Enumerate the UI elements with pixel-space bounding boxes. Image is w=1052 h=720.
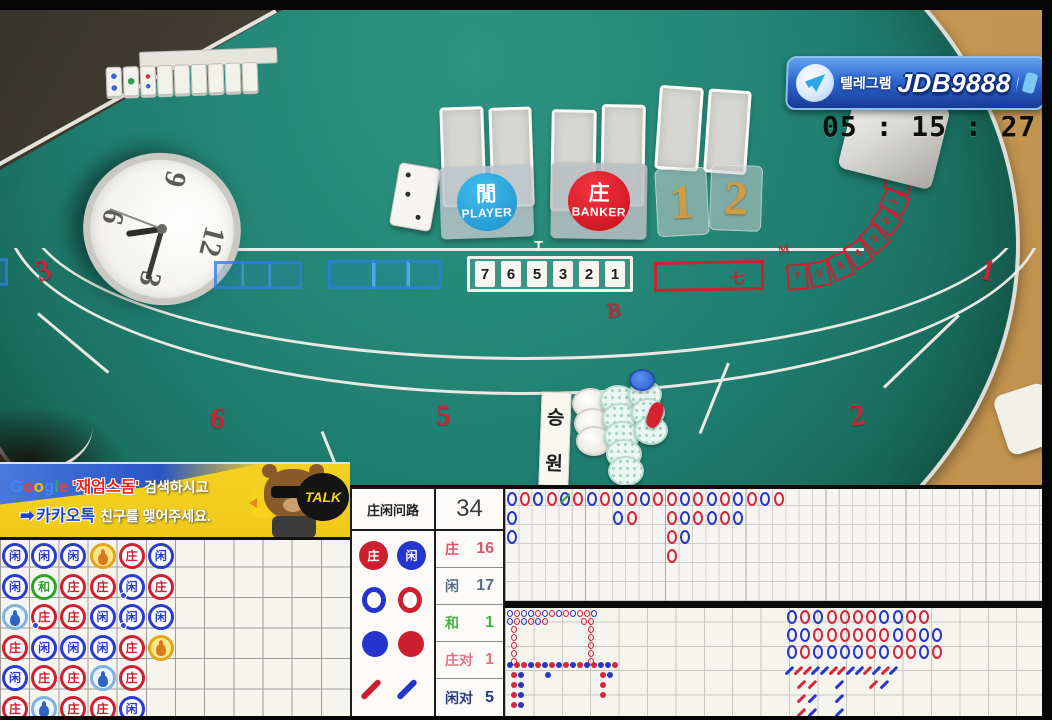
telegram-label: 텔레그램	[840, 73, 892, 93]
big-road	[505, 485, 1052, 601]
road-ring	[893, 645, 903, 659]
stat-value: 1	[485, 614, 494, 632]
road-ring	[919, 628, 929, 642]
stat-row: 闲17	[436, 568, 503, 605]
legend-banker-bead: 庄	[359, 541, 388, 570]
smallroad-dot	[605, 662, 611, 668]
road-ring	[787, 645, 797, 659]
shoe-number-tile: 1	[654, 167, 709, 238]
player-bet-box	[328, 260, 442, 289]
bead	[90, 665, 116, 691]
letterbox-bottom	[0, 716, 1052, 720]
bigeye-ring	[588, 634, 594, 641]
google-logo-letter: e	[59, 477, 68, 496]
paper-plane-icon	[805, 74, 826, 92]
bigeye-ring	[511, 634, 517, 641]
google-logo-letter: o	[23, 477, 33, 496]
smallroad-dot	[518, 682, 524, 688]
talk-label: TALK	[305, 489, 341, 505]
player-marker: 閒 PLAYER	[439, 164, 534, 239]
smallroad-dot	[511, 692, 517, 698]
player-bet-box	[0, 258, 8, 286]
stat-value: 17	[476, 577, 494, 595]
stat-label: 庄对	[445, 650, 473, 670]
legend-smallroad-red-icon	[398, 631, 424, 657]
banker-hanzi: 庄	[588, 183, 609, 205]
road-ring	[906, 628, 916, 642]
shoe-number-tile: 2	[709, 164, 763, 232]
road-ring	[866, 628, 876, 642]
bead: 庄	[148, 574, 174, 600]
road-ring	[533, 492, 543, 506]
road-ring	[827, 610, 837, 624]
road-ring	[573, 492, 583, 506]
road-ring	[587, 492, 597, 506]
smallroad-dot	[591, 662, 597, 668]
seat-number: 7	[475, 261, 495, 287]
clock-numeral: 9	[156, 168, 193, 191]
bead: 庄	[119, 543, 145, 569]
stat-row: 庄16	[436, 531, 503, 568]
stat-label: 闲对	[445, 688, 473, 708]
road-ring	[840, 610, 850, 624]
smallroad-dot	[600, 682, 606, 688]
games-total: 34	[436, 489, 503, 529]
stat-row: 闲对5	[436, 679, 503, 716]
telegram-banner[interactable]: 텔레그램 JDB9888	[785, 56, 1047, 110]
bigeye-ring	[588, 650, 594, 657]
bigeye-ring	[507, 618, 513, 625]
road-ring	[787, 628, 797, 642]
stat-value: 5	[485, 689, 494, 707]
clock-face: 12 3 6 9	[67, 136, 257, 322]
road-ring	[613, 492, 623, 506]
bead: 闲	[2, 665, 28, 691]
bigeye-ring	[511, 626, 517, 633]
bigeye-ring	[521, 610, 527, 617]
road-ring	[840, 628, 850, 642]
seat-number: 5	[527, 261, 547, 287]
ad-kakao-text: 카카오톡	[36, 508, 95, 525]
bead: 闲	[31, 543, 57, 569]
legend-cockroach-red-icon	[360, 679, 382, 701]
banker-marker: 庄 BANKER	[550, 162, 647, 240]
smallroad-dot	[511, 682, 517, 688]
road-ring	[547, 492, 557, 506]
road-ring	[613, 511, 623, 525]
road-ring	[507, 511, 517, 525]
ad-line-2: ➡카카오톡친구를 맺어주세요.	[20, 502, 211, 526]
smallroad-dot	[549, 662, 555, 668]
road-ring	[774, 492, 784, 506]
road-ring	[827, 628, 837, 642]
banker-marker-circle: 庄 BANKER	[567, 170, 630, 231]
smallroad-dot	[570, 662, 576, 668]
smallroad-dot	[535, 662, 541, 668]
bead: 和	[31, 574, 57, 600]
derived-roads	[505, 601, 1052, 720]
bead: 闲	[60, 635, 86, 661]
bead: 庄	[60, 665, 86, 691]
road-ring	[667, 492, 677, 506]
road-ring	[853, 610, 863, 624]
bead: 闲	[2, 574, 28, 600]
bigeye-ring	[588, 618, 594, 625]
pair-dot	[120, 592, 127, 599]
legend-bigeye-blue-icon	[362, 587, 386, 613]
bigeye-ring	[581, 618, 587, 625]
bigeye-ring	[549, 610, 555, 617]
road-ring	[932, 628, 942, 642]
casino-chip	[608, 456, 644, 486]
road-ring	[600, 492, 610, 506]
road-ring	[667, 511, 677, 525]
smallroad-dot	[518, 702, 524, 708]
google-logo: Google	[10, 479, 69, 496]
road-ring	[800, 628, 810, 642]
smallroad-dot	[600, 692, 606, 698]
road-ring	[680, 492, 690, 506]
banker-bet-label: 七	[730, 267, 745, 288]
road-ring	[627, 492, 637, 506]
legend-player-bead: 闲	[397, 541, 426, 570]
bead: 庄	[119, 635, 145, 661]
road-ring	[680, 530, 690, 544]
bigeye-ring	[511, 650, 517, 657]
legend-column: 庄 闲	[352, 531, 436, 716]
road-ring	[787, 610, 797, 624]
stat-row: 和1	[436, 605, 503, 642]
stat-label: 闲	[445, 576, 459, 596]
bead: 庄	[60, 574, 86, 600]
road-ring	[667, 530, 677, 544]
felt-number: M	[777, 242, 790, 256]
road-ring	[720, 511, 730, 525]
paper-plane-icon	[1015, 74, 1019, 92]
spare-card-zone	[654, 85, 752, 175]
bead: 庄	[119, 665, 145, 691]
google-logo-letter: G	[10, 477, 23, 496]
road-ring	[747, 492, 757, 506]
shoe-number: 1	[669, 174, 696, 230]
telegram-icon	[795, 64, 834, 102]
bead: 闲	[90, 635, 116, 661]
big-road-grid	[505, 489, 1052, 601]
google-logo-letter: g	[44, 477, 54, 496]
talk-bubble: TALK	[297, 473, 349, 521]
bead	[2, 604, 28, 630]
google-logo-letter: o	[34, 477, 44, 496]
bigeye-ring	[584, 610, 590, 617]
bigeye-ring	[591, 610, 597, 617]
road-ring	[919, 610, 929, 624]
felt-number: B	[606, 299, 622, 321]
bigeye-ring	[528, 610, 534, 617]
smallroad-dot	[507, 662, 513, 668]
telegram-handle: JDB9888	[897, 68, 1011, 99]
smallroad-dot	[584, 662, 590, 668]
smallroad-dot	[577, 662, 583, 668]
pair-dot	[120, 622, 127, 629]
smallroad-dot	[521, 662, 527, 668]
seat-number: 1	[605, 261, 625, 287]
road-ring	[840, 645, 850, 659]
road-ring	[893, 628, 903, 642]
kakao-ad-banner[interactable]: Google'재엄스돔'검색하시고 ➡카카오톡친구를 맺어주세요. TALK	[0, 462, 350, 537]
bead-plate: 闲闲闲庄闲闲和庄庄闲庄庄庄闲闲闲庄闲闲闲庄闲庄庄庄庄庄庄闲	[0, 537, 350, 720]
mahjong-tiles	[105, 51, 287, 105]
road-ring	[627, 511, 637, 525]
player-label: PLAYER	[461, 205, 512, 221]
bigeye-ring	[577, 610, 583, 617]
korean-sign: 승 원	[538, 392, 571, 487]
road-ring	[919, 645, 929, 659]
stats-title: 庄闲问路	[352, 489, 436, 529]
stats-rows: 庄16闲17和1庄对1闲对5	[436, 531, 503, 716]
road-ring	[653, 492, 663, 506]
road-ring	[507, 530, 517, 544]
road-ring	[720, 492, 730, 506]
smallroad-dot	[612, 662, 618, 668]
casino-table-scene: 12 3 6 9 閒 PLAYER	[0, 0, 1052, 487]
legend-bigeye-red-icon	[398, 587, 422, 613]
letterbox-right	[1042, 0, 1052, 720]
bigeye-ring	[588, 642, 594, 649]
stats-header: 庄闲问路 34	[352, 489, 503, 531]
smallroad-dot	[514, 662, 520, 668]
road-ring	[680, 511, 690, 525]
bigeye-ring	[521, 618, 527, 625]
mahjong-tile-row	[106, 62, 260, 97]
bigeye-ring	[514, 610, 520, 617]
bead: 闲	[90, 604, 116, 630]
road-ring	[906, 645, 916, 659]
ad-line-1: Google'재엄스돔'검색하시고	[10, 473, 209, 497]
smallroad-dot	[563, 662, 569, 668]
bigeye-ring	[511, 642, 517, 649]
casino-chip	[629, 369, 655, 391]
smallroad-dot	[600, 672, 606, 678]
stat-row: 庄对1	[436, 642, 503, 679]
clock-numeral: 12	[191, 223, 231, 260]
bigeye-ring	[514, 618, 520, 625]
bead: 闲	[31, 635, 57, 661]
bigeye-ring	[563, 610, 569, 617]
ad-keyword: '재엄스돔'	[73, 479, 140, 496]
stats-panel: 庄闲问路 34 庄 闲 庄16闲17和1庄对1闲对5	[350, 487, 505, 720]
road-ring	[640, 492, 650, 506]
felt-line	[228, 248, 864, 251]
road-ring	[827, 645, 837, 659]
bigeye-ring	[528, 618, 534, 625]
road-ring	[853, 628, 863, 642]
shoe-number: 2	[723, 170, 749, 226]
bigeye-ring	[507, 610, 513, 617]
smallroad-dot	[518, 692, 524, 698]
road-ring	[906, 610, 916, 624]
smallroad-dot	[542, 662, 548, 668]
bead: 庄	[60, 604, 86, 630]
bigeye-ring	[542, 618, 548, 625]
road-ring	[853, 645, 863, 659]
bigeye-ring	[535, 610, 541, 617]
clock-time-display: 05 : 15 : 27 pm	[822, 110, 1048, 143]
player-bet-box	[214, 261, 302, 289]
stat-label: 庄	[445, 539, 459, 559]
bead	[148, 635, 174, 661]
bigeye-ring	[535, 618, 541, 625]
legend-cockroach-blue-icon	[396, 679, 418, 701]
bead: 庄	[2, 635, 28, 661]
card-slot	[703, 88, 752, 175]
stat-value: 16	[476, 540, 494, 558]
road-ring	[893, 610, 903, 624]
road-ring	[667, 549, 677, 563]
card-slot	[654, 85, 703, 172]
smallroad-dot	[556, 662, 562, 668]
letterbox-top	[0, 0, 1052, 10]
bead: 闲	[60, 543, 86, 569]
smallroad-dot	[598, 662, 604, 668]
ad-text-2: 친구를 맺어주세요.	[100, 508, 211, 524]
road-ring	[520, 492, 530, 506]
smallroad-dot	[511, 672, 517, 678]
bead: 闲	[2, 543, 28, 569]
smallroad-dot	[518, 672, 524, 678]
bead	[90, 543, 116, 569]
live-baccarat-screen: 12 3 6 9 閒 PLAYER	[0, 0, 1052, 720]
felt-number: 5	[436, 401, 451, 431]
arc-seat-box: 7	[786, 263, 809, 290]
stat-value: 1	[485, 651, 494, 669]
player-marker-circle: 閒 PLAYER	[456, 172, 518, 232]
smallroad-dot	[528, 662, 534, 668]
legend-smallroad-blue-icon	[362, 631, 388, 657]
road-ring	[707, 492, 717, 506]
phone-icon	[1021, 72, 1038, 94]
bigeye-ring	[588, 626, 594, 633]
arrow-icon: ➡	[20, 506, 34, 525]
road-ring	[707, 511, 717, 525]
player-hanzi: 閒	[475, 184, 497, 207]
banker-label: BANKER	[572, 205, 627, 220]
korean-sign-char: 원	[545, 448, 563, 476]
korean-sign-char: 승	[547, 402, 565, 430]
smallroad-dot	[511, 702, 517, 708]
bigeye-ring	[570, 610, 576, 617]
ad-text: 검색하시고	[144, 479, 208, 495]
banker-bet-box: 七	[654, 260, 765, 292]
seat-number-strip: 765321	[467, 256, 633, 292]
seat-number: 6	[501, 261, 521, 287]
stat-label: 和	[445, 613, 459, 633]
smallroad-dot	[545, 672, 551, 678]
bead: 庄	[90, 574, 116, 600]
table-marker-t: T	[534, 238, 543, 255]
bigeye-ring	[556, 610, 562, 617]
seat-number: 3	[553, 261, 573, 287]
bead: 闲	[148, 543, 174, 569]
smallroad-dot	[607, 672, 613, 678]
road-ring	[507, 492, 517, 506]
road-ring	[760, 492, 770, 506]
bead: 庄	[31, 665, 57, 691]
seat-number: 2	[579, 261, 599, 287]
bead: 闲	[148, 604, 174, 630]
bigeye-ring	[542, 610, 548, 617]
